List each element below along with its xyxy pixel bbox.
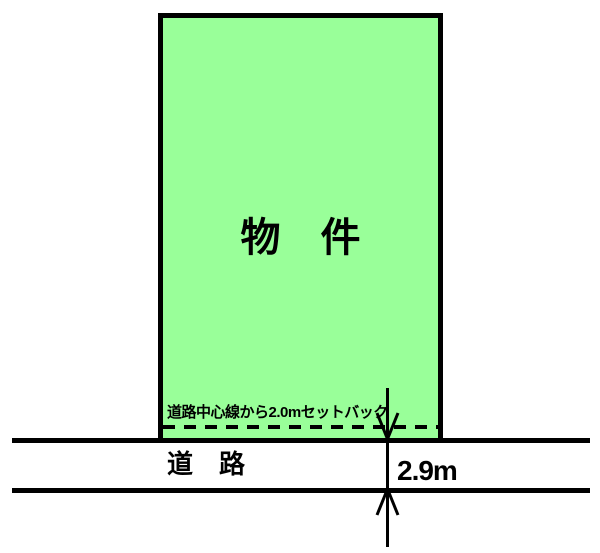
setback-dashed-line xyxy=(163,425,440,429)
road-upper-edge-line xyxy=(12,438,590,443)
property-area: 物 件 xyxy=(158,13,443,440)
property-label: 物 件 xyxy=(163,218,438,258)
road-label: 道 路 xyxy=(167,451,245,477)
road-lower-edge-line xyxy=(12,488,590,493)
setback-note-label: 道路中心線から2.0mセットバック xyxy=(167,401,388,422)
road-width-label: 2.9m xyxy=(397,457,457,485)
plot-diagram: 物 件 道路中心線から2.0mセットバック 道 路 2.9m xyxy=(0,0,600,553)
